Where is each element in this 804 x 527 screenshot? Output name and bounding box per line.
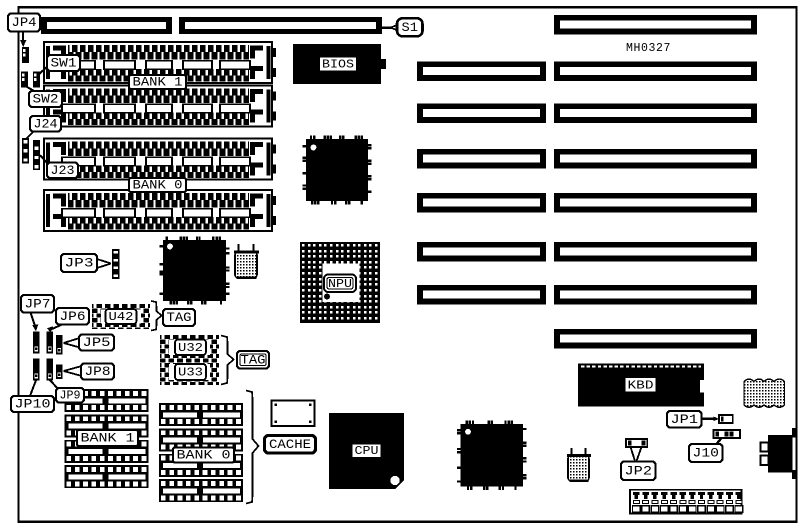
svg-text:TAG: TAG <box>241 353 266 367</box>
svg-text:S1: S1 <box>402 21 419 35</box>
svg-text:TAG: TAG <box>167 311 192 325</box>
svg-text:BANK 1: BANK 1 <box>81 432 135 446</box>
svg-text:JP10: JP10 <box>15 398 51 412</box>
svg-text:BIOS: BIOS <box>322 58 354 72</box>
svg-text:JP3: JP3 <box>65 257 94 271</box>
svg-text:JP6: JP6 <box>60 310 86 324</box>
svg-text:BANK 1: BANK 1 <box>133 76 183 90</box>
svg-text:U42: U42 <box>109 310 134 324</box>
svg-text:JP4: JP4 <box>12 16 37 30</box>
svg-text:JP8: JP8 <box>85 365 111 379</box>
svg-text:J23: J23 <box>51 164 75 178</box>
svg-text:J10: J10 <box>693 447 720 461</box>
svg-text:BANK 0: BANK 0 <box>177 449 231 463</box>
svg-text:NPU: NPU <box>328 277 352 291</box>
svg-text:JP1: JP1 <box>671 413 699 427</box>
svg-text:JP5: JP5 <box>83 336 111 350</box>
svg-text:U33: U33 <box>178 366 203 380</box>
svg-text:BANK 0: BANK 0 <box>133 179 183 193</box>
svg-text:KBD: KBD <box>628 378 654 392</box>
svg-text:JP7: JP7 <box>25 297 51 311</box>
svg-text:JP2: JP2 <box>625 464 653 478</box>
svg-text:JP9: JP9 <box>60 389 81 402</box>
svg-text:SW2: SW2 <box>33 93 59 107</box>
svg-text:MH0327: MH0327 <box>626 42 671 55</box>
svg-text:CACHE: CACHE <box>269 438 311 452</box>
svg-text:CPU: CPU <box>355 445 379 458</box>
svg-text:J24: J24 <box>34 117 58 131</box>
svg-text:U32: U32 <box>178 341 203 355</box>
svg-text:SW1: SW1 <box>51 57 77 71</box>
